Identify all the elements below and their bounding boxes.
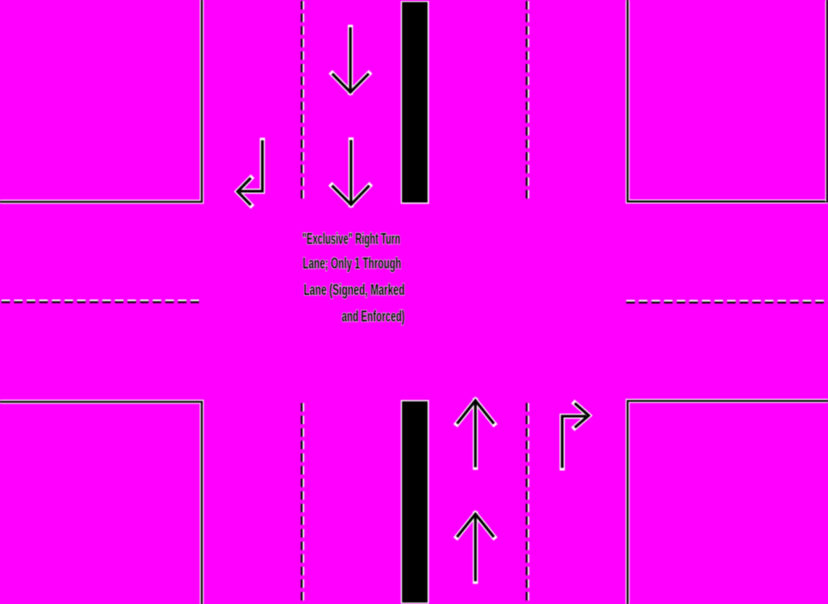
svg-text:"Exclusive" Right Turn: "Exclusive" Right Turn [302,231,400,248]
svg-text:and Enforced): and Enforced) [342,308,405,325]
svg-text:Lane; Only 1 Through: Lane; Only 1 Through [303,255,401,272]
svg-text:Lane (Signed, Marked: Lane (Signed, Marked [304,282,405,299]
